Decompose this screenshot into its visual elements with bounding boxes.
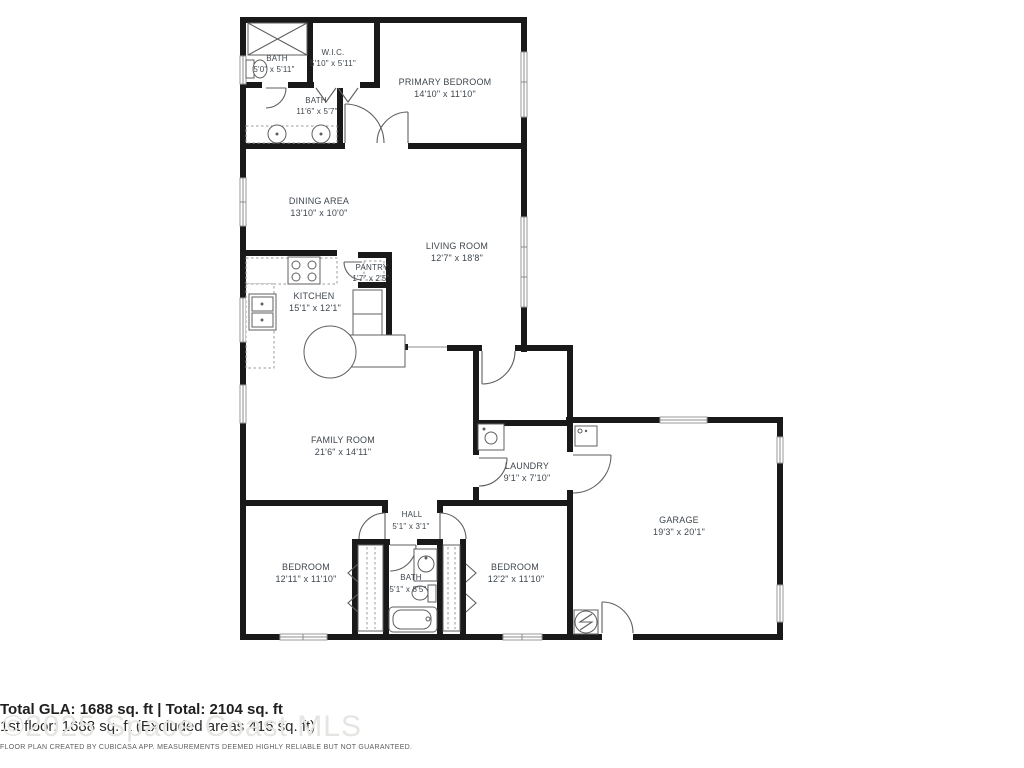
watermark: ©2025 Space Coast MLS [2, 710, 362, 744]
refrigerator [353, 290, 382, 338]
room-dims: 12'7" x 18'8" [431, 253, 483, 263]
shower [248, 23, 307, 55]
room-dims: 19'3" x 20'1" [653, 527, 705, 537]
door-arc [440, 513, 466, 539]
window [777, 437, 783, 463]
room-label: GARAGE [659, 515, 699, 525]
door-arc [602, 602, 633, 633]
window [777, 585, 783, 622]
door-arc [377, 112, 408, 143]
room-label: PRIMARY BEDROOM [399, 77, 492, 87]
door-arc [482, 351, 515, 384]
room-dims: 1'7" x 2'5" [352, 274, 389, 283]
electrical-panel [574, 610, 598, 634]
window [660, 417, 707, 423]
window [503, 634, 542, 640]
window [240, 385, 246, 423]
room-label: PANTRY [356, 263, 389, 272]
door-arc [390, 545, 416, 571]
room-label: BATH [400, 573, 422, 582]
washer [478, 424, 504, 450]
room-label: LIVING ROOM [426, 241, 488, 251]
room-label: W.I.C. [322, 48, 345, 57]
room-label: BEDROOM [491, 562, 539, 572]
floor-plan-page: BATH 5'0" x 5'11" W.I.C. 5'10" x 5'11" P… [0, 0, 1024, 768]
window [240, 298, 246, 342]
room-dims: 9'1" x 7'10" [504, 473, 551, 483]
room-dims: 13'10" x 10'0" [290, 208, 347, 218]
room-dims: 14'10" x 11'10" [414, 89, 476, 99]
room-dims: 5'0" x 5'11" [253, 65, 294, 74]
door-arc [359, 513, 385, 539]
bathtub [389, 607, 437, 632]
floor-plan-drawing: BATH 5'0" x 5'11" W.I.C. 5'10" x 5'11" P… [0, 0, 1024, 768]
closet [443, 545, 476, 631]
room-dims: 21'6" x 14'11" [315, 447, 372, 457]
kitchen-sink [249, 294, 276, 330]
room-dims: 5'1" x 3'1" [392, 522, 429, 531]
disclaimer-line: FLOOR PLAN CREATED BY CUBICASA APP. MEAS… [0, 744, 1024, 751]
room-label: BATH [305, 96, 327, 105]
room-dims: 12'2" x 11'10" [488, 574, 545, 584]
room-dims: 15'1" x 12'1" [289, 303, 341, 313]
window [240, 178, 246, 226]
vanity [246, 125, 337, 143]
room-label: FAMILY ROOM [311, 435, 375, 445]
window [280, 634, 327, 640]
stove [288, 257, 320, 284]
room-label: DINING AREA [289, 196, 349, 206]
room-label: HALL [402, 510, 423, 519]
window [521, 52, 527, 117]
window [521, 217, 527, 307]
door-arc [345, 104, 384, 143]
room-dims: 5'10" x 5'11" [310, 59, 356, 68]
door-arc [573, 455, 611, 493]
room-dims: 12'11" x 11'10" [275, 574, 336, 584]
window [240, 56, 246, 84]
water-heater [575, 426, 597, 446]
room-dims: 11'6" x 5'7" [296, 107, 337, 116]
room-dims: 5'1" x 8'5" [389, 585, 426, 594]
room-label: BATH [266, 54, 288, 63]
room-label: LAUNDRY [505, 461, 549, 471]
door-arc [266, 88, 286, 108]
room-label: BEDROOM [282, 562, 330, 572]
room-label: KITCHEN [294, 291, 335, 301]
